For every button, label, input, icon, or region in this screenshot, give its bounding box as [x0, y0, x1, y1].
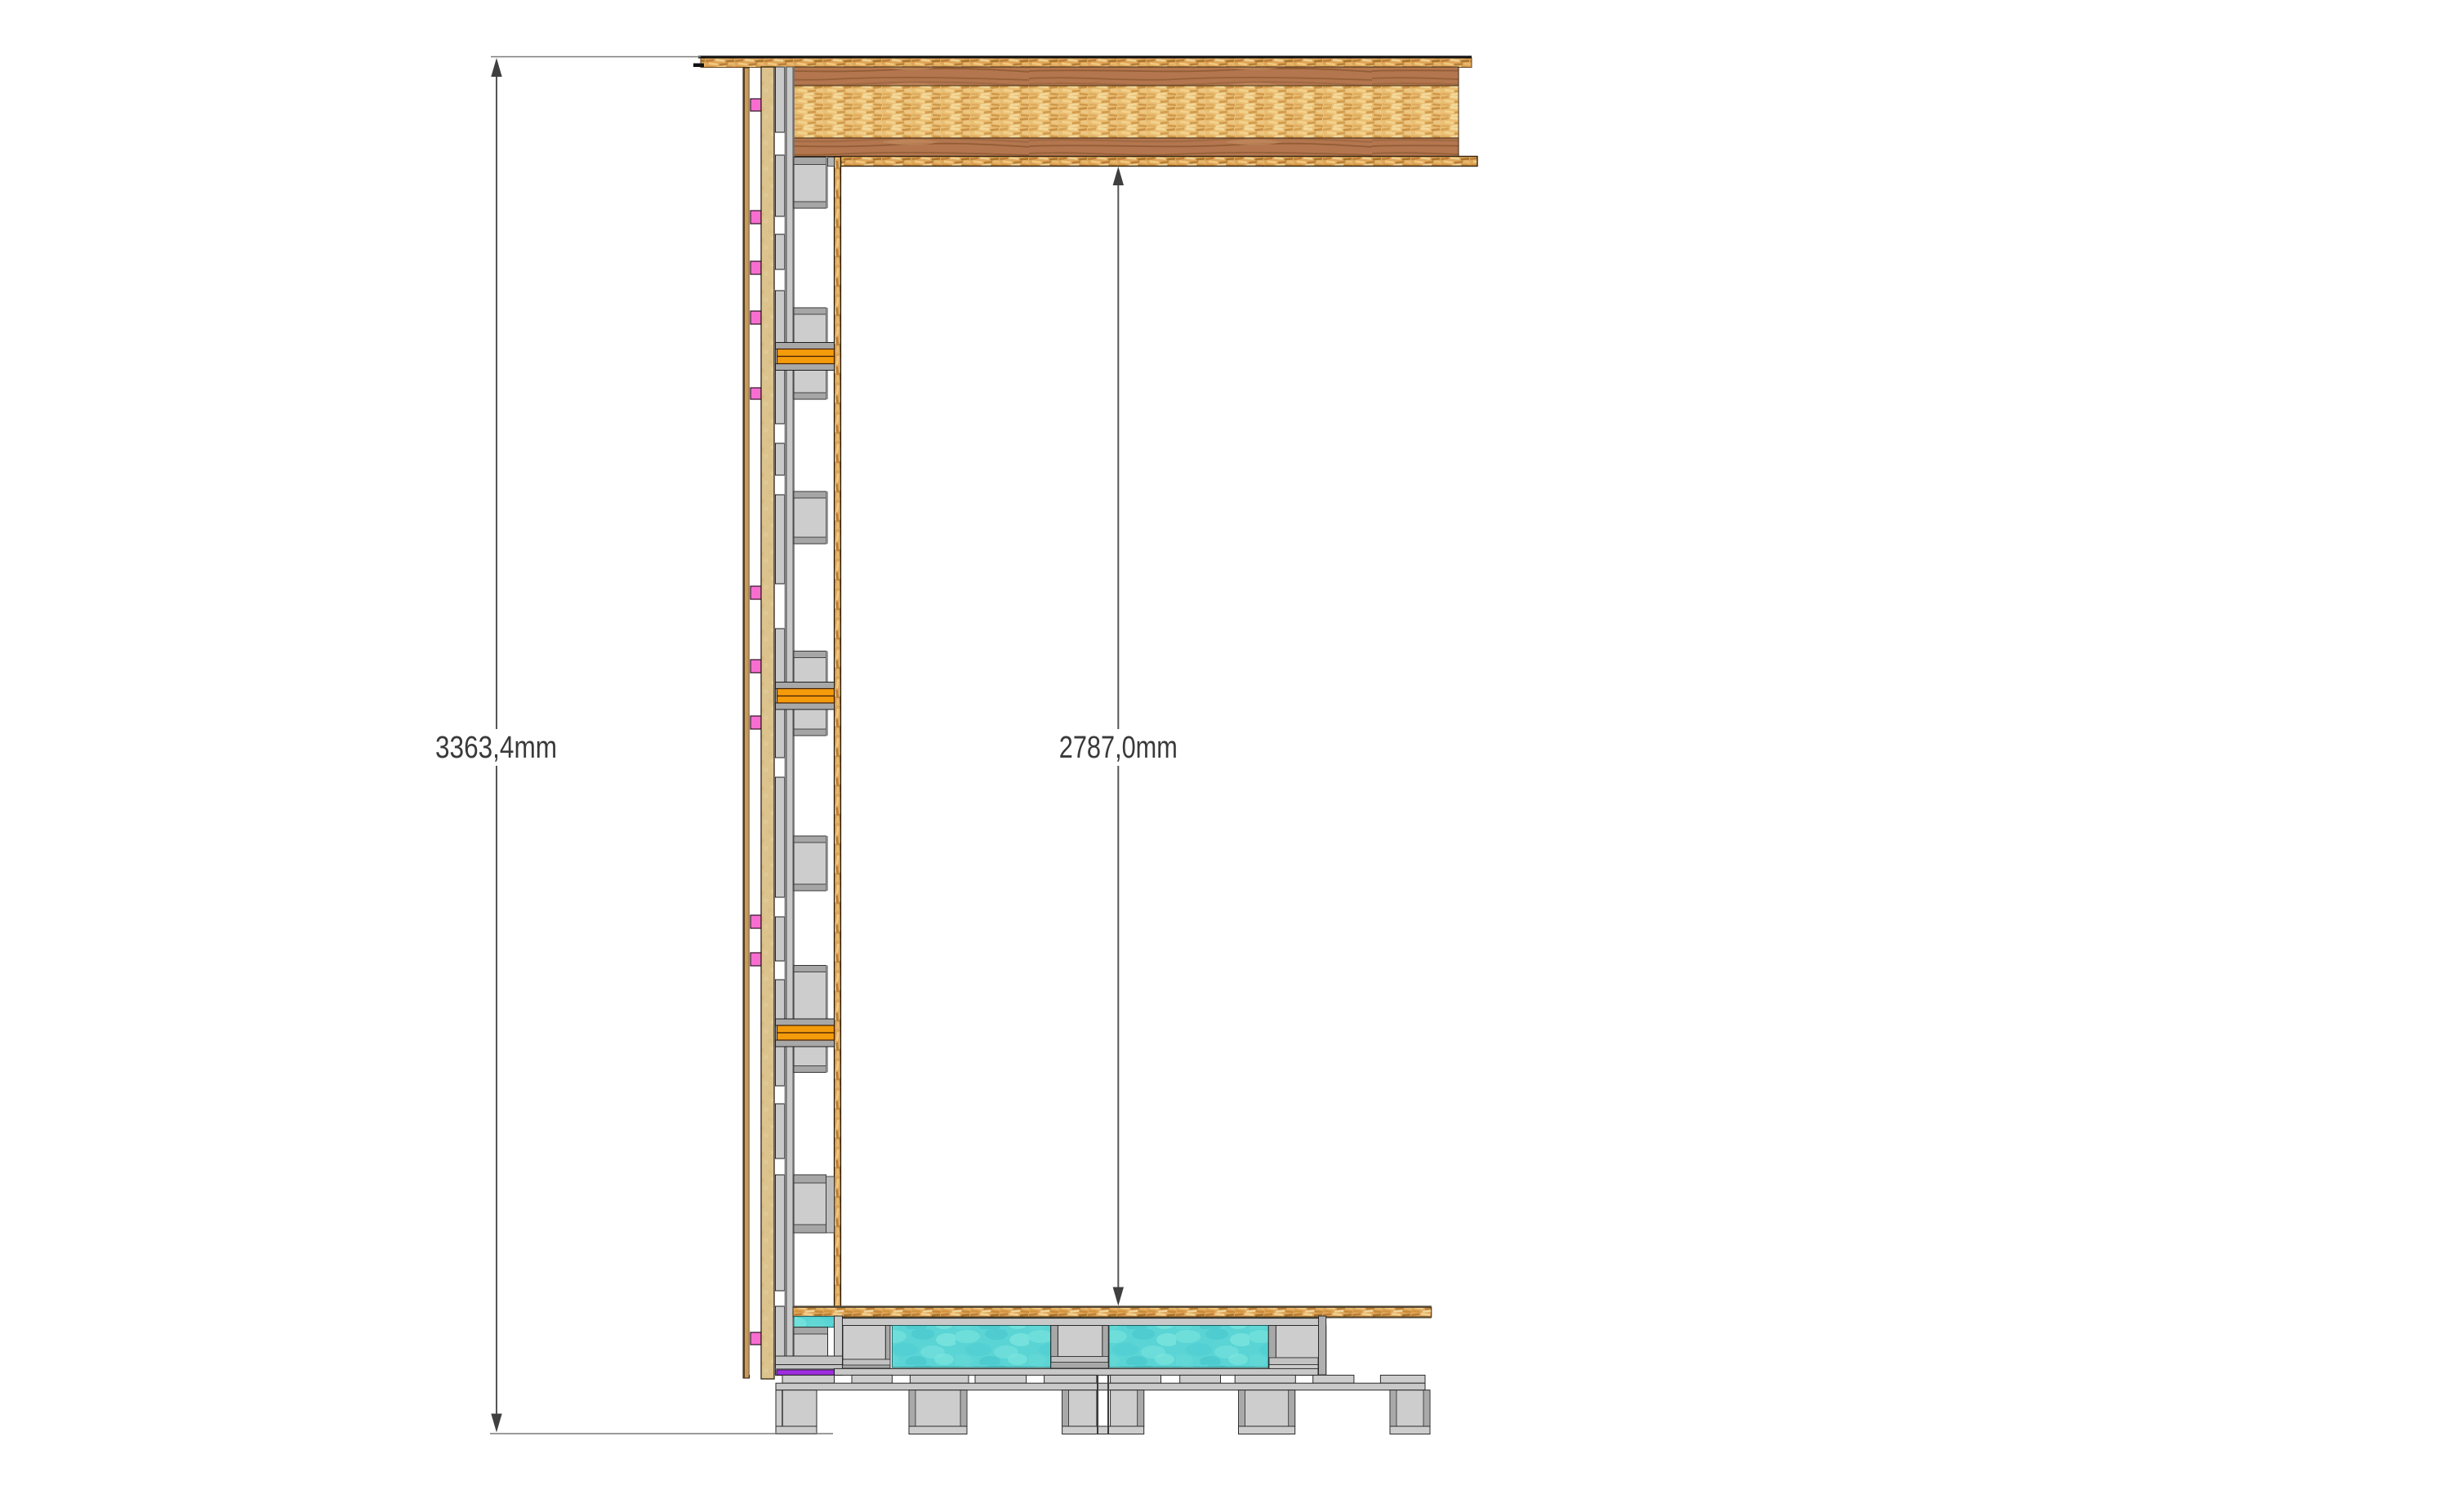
svg-text:3363,4mm: 3363,4mm: [435, 731, 557, 765]
svg-text:2787,0mm: 2787,0mm: [1059, 731, 1178, 765]
